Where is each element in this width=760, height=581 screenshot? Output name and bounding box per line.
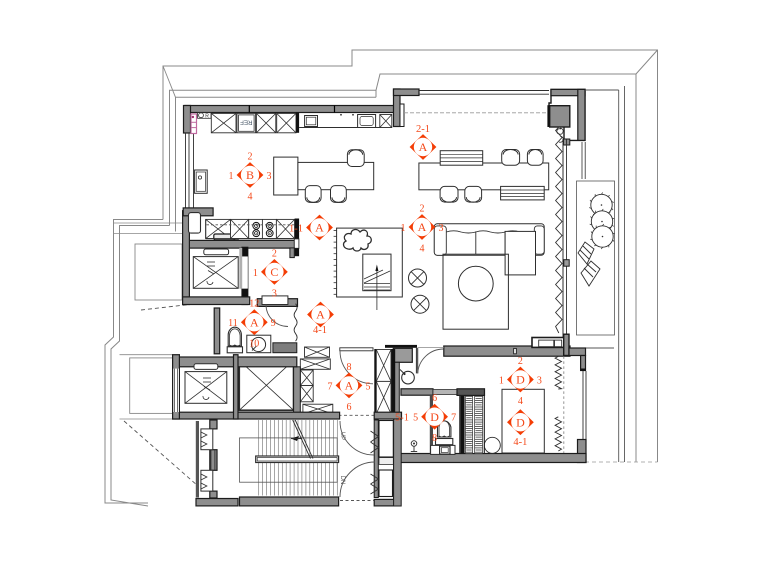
svg-text:7: 7 bbox=[451, 413, 456, 424]
svg-text:8: 8 bbox=[347, 362, 352, 373]
svg-text:3: 3 bbox=[439, 223, 444, 234]
svg-text:2-1: 2-1 bbox=[416, 124, 430, 135]
svg-text:REF: REF bbox=[240, 119, 253, 126]
svg-text:3: 3 bbox=[272, 288, 277, 299]
svg-text:B: B bbox=[246, 168, 254, 182]
svg-text:1: 1 bbox=[401, 223, 406, 234]
svg-text:4: 4 bbox=[518, 396, 523, 407]
svg-text:R: R bbox=[205, 114, 209, 120]
svg-text:5: 5 bbox=[413, 413, 418, 424]
svg-text:5-1: 5-1 bbox=[395, 413, 409, 424]
svg-text:1: 1 bbox=[499, 376, 504, 387]
svg-text:3: 3 bbox=[537, 376, 542, 387]
svg-text:2: 2 bbox=[420, 204, 425, 215]
svg-text:D: D bbox=[516, 415, 525, 429]
svg-text:4-1: 4-1 bbox=[313, 325, 327, 336]
svg-text:5: 5 bbox=[366, 381, 371, 392]
svg-text:A: A bbox=[418, 220, 427, 234]
svg-text:2: 2 bbox=[248, 152, 253, 163]
svg-text:4: 4 bbox=[248, 192, 253, 203]
svg-text:2: 2 bbox=[272, 248, 277, 259]
svg-text:4: 4 bbox=[420, 244, 425, 255]
svg-text:A: A bbox=[316, 308, 325, 322]
svg-text:7: 7 bbox=[328, 381, 333, 392]
svg-text:9: 9 bbox=[271, 318, 276, 329]
svg-text:12: 12 bbox=[249, 299, 259, 310]
svg-text:1: 1 bbox=[253, 268, 258, 279]
svg-text:A: A bbox=[345, 379, 354, 393]
svg-text:A: A bbox=[315, 221, 324, 235]
svg-text:C: C bbox=[270, 265, 278, 279]
svg-text:2: 2 bbox=[518, 356, 523, 367]
svg-text:1-1: 1-1 bbox=[289, 224, 303, 235]
svg-text:8: 8 bbox=[432, 433, 437, 444]
svg-text:D: D bbox=[516, 373, 525, 387]
svg-text:6: 6 bbox=[347, 402, 352, 413]
svg-text:1: 1 bbox=[229, 171, 234, 182]
svg-text:A: A bbox=[419, 140, 428, 154]
svg-text:D: D bbox=[430, 410, 439, 424]
svg-text:3: 3 bbox=[267, 171, 272, 182]
svg-text:6: 6 bbox=[432, 393, 437, 404]
svg-text:4-1: 4-1 bbox=[513, 437, 527, 448]
svg-text:A: A bbox=[250, 315, 259, 329]
svg-text:10: 10 bbox=[249, 339, 259, 350]
svg-text:11: 11 bbox=[228, 318, 238, 329]
